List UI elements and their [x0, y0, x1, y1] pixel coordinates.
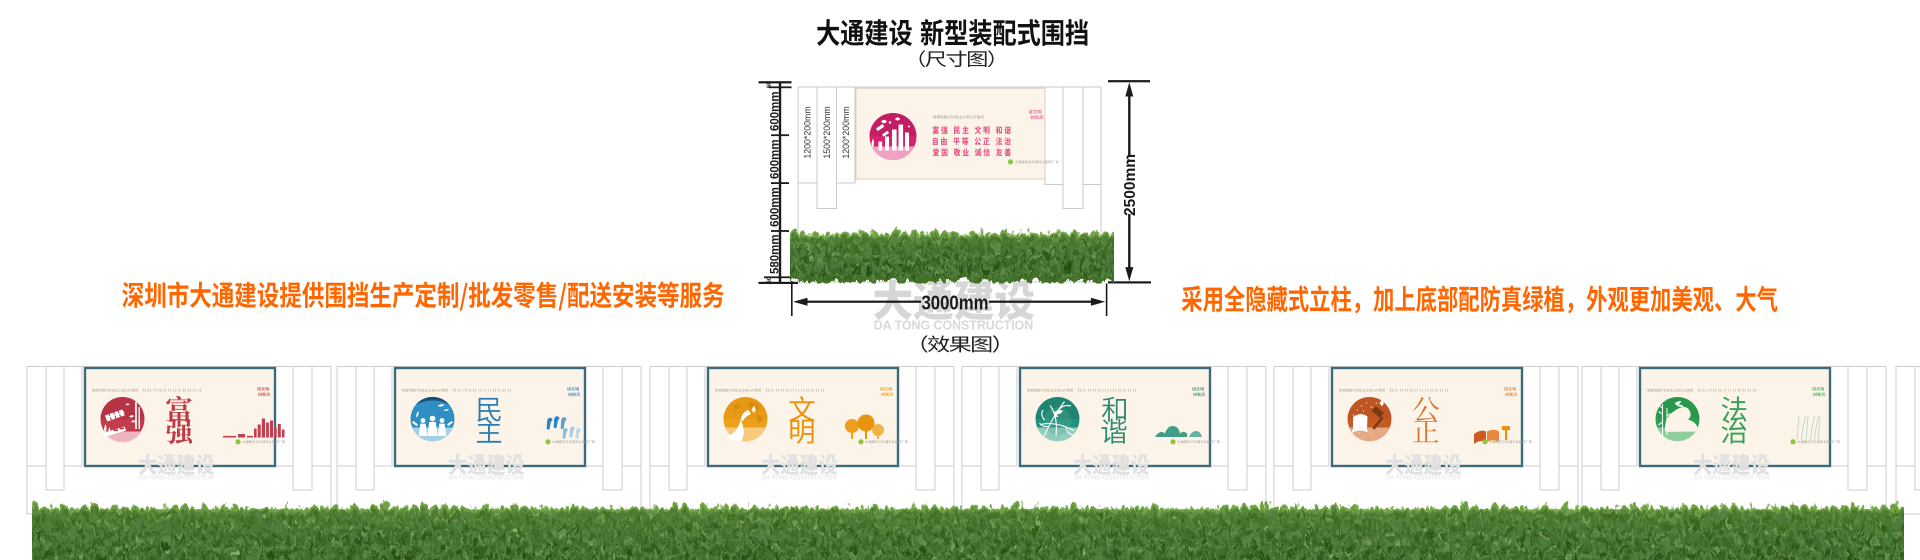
svg-text:1500*200mm: 1500*200mm: [822, 106, 832, 158]
svg-text:60: 60: [766, 276, 773, 284]
svg-text:2500mm: 2500mm: [1122, 154, 1139, 216]
svg-text:DA TONG CONSTRUCTION: DA TONG CONSTRUCTION: [874, 319, 1034, 333]
svg-text:1200*200mm: 1200*200mm: [803, 106, 813, 158]
svg-text:600mm: 600mm: [769, 91, 781, 131]
svg-text:3000mm: 3000mm: [922, 291, 989, 314]
svg-text:60: 60: [766, 81, 773, 89]
svg-text:600mm: 600mm: [769, 187, 781, 227]
svg-text:580mm: 580mm: [769, 234, 781, 274]
svg-text:600mm: 600mm: [769, 139, 781, 179]
svg-text:1200*200mm: 1200*200mm: [841, 106, 851, 158]
